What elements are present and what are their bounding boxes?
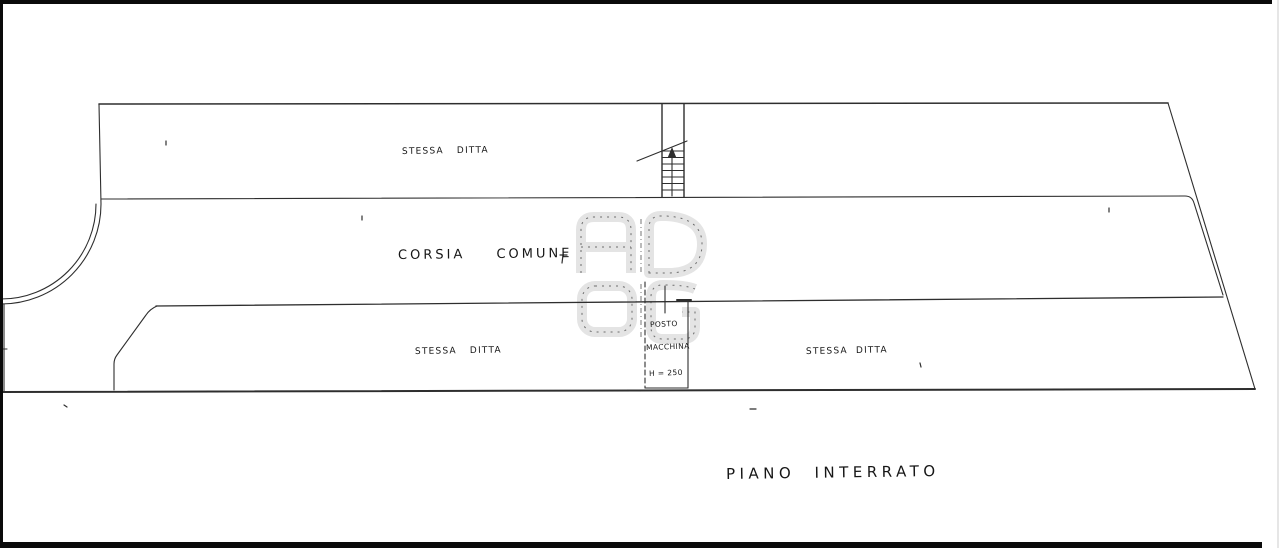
watermark-letter-a	[581, 217, 631, 273]
label-parking-line1: POSTO	[650, 319, 678, 329]
scan-specks	[64, 141, 1109, 409]
watermark-letter-o	[582, 286, 632, 332]
sheet-border-right	[1277, 0, 1279, 548]
stairs-up-arrow-icon	[668, 147, 677, 196]
label-parking-height: H = 250	[649, 368, 683, 378]
watermark-dither	[581, 216, 702, 339]
label-lower-left-unit: STESSA DITTA	[415, 345, 502, 357]
floor-title: PIANO INTERRATO	[726, 462, 940, 483]
stairs	[637, 104, 687, 197]
label-lower-right-unit: STESSA DITTA	[806, 345, 888, 357]
sheet-border-bottom	[0, 542, 1262, 548]
label-upper-unit: STESSA DITTA	[402, 145, 489, 157]
sheet-border-left	[0, 0, 3, 548]
label-parking-line2: MACCHINA	[646, 341, 690, 352]
floor-plan-canvas	[0, 0, 1280, 548]
sheet-border-top	[0, 0, 1272, 4]
entrance-ramp-curve	[1, 204, 101, 304]
scanned-floor-plan-page: STESSA DITTA CORSIA COMUNE STESSA DITTA …	[0, 0, 1280, 548]
label-corridor: CORSIA COMUNE	[398, 246, 573, 263]
